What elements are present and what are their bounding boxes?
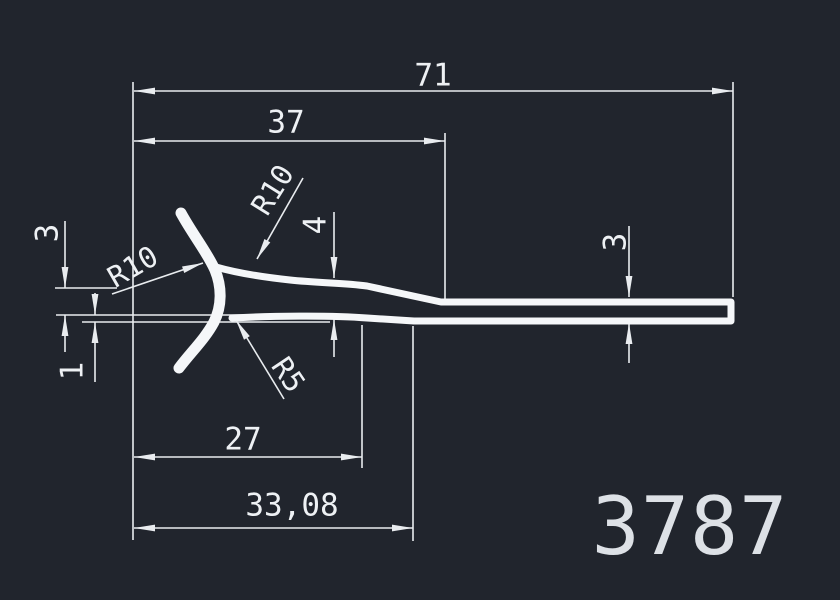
dim-label-33-08: 33,08 (245, 491, 338, 522)
dim-label-37: 37 (267, 108, 304, 139)
dim-label-71: 71 (414, 61, 451, 92)
dim-label-4: 4 (301, 216, 332, 235)
dim-label-3-left: 3 (33, 224, 64, 243)
dim-label-3-right: 3 (601, 233, 632, 252)
cad-viewport: 71 37 27 33,08 3 1 4 3 R10 R10 R5 3787 (0, 0, 840, 600)
part-number-label: 3787 (592, 487, 789, 567)
dim-label-1: 1 (58, 362, 89, 381)
dim-label-27: 27 (224, 425, 261, 456)
